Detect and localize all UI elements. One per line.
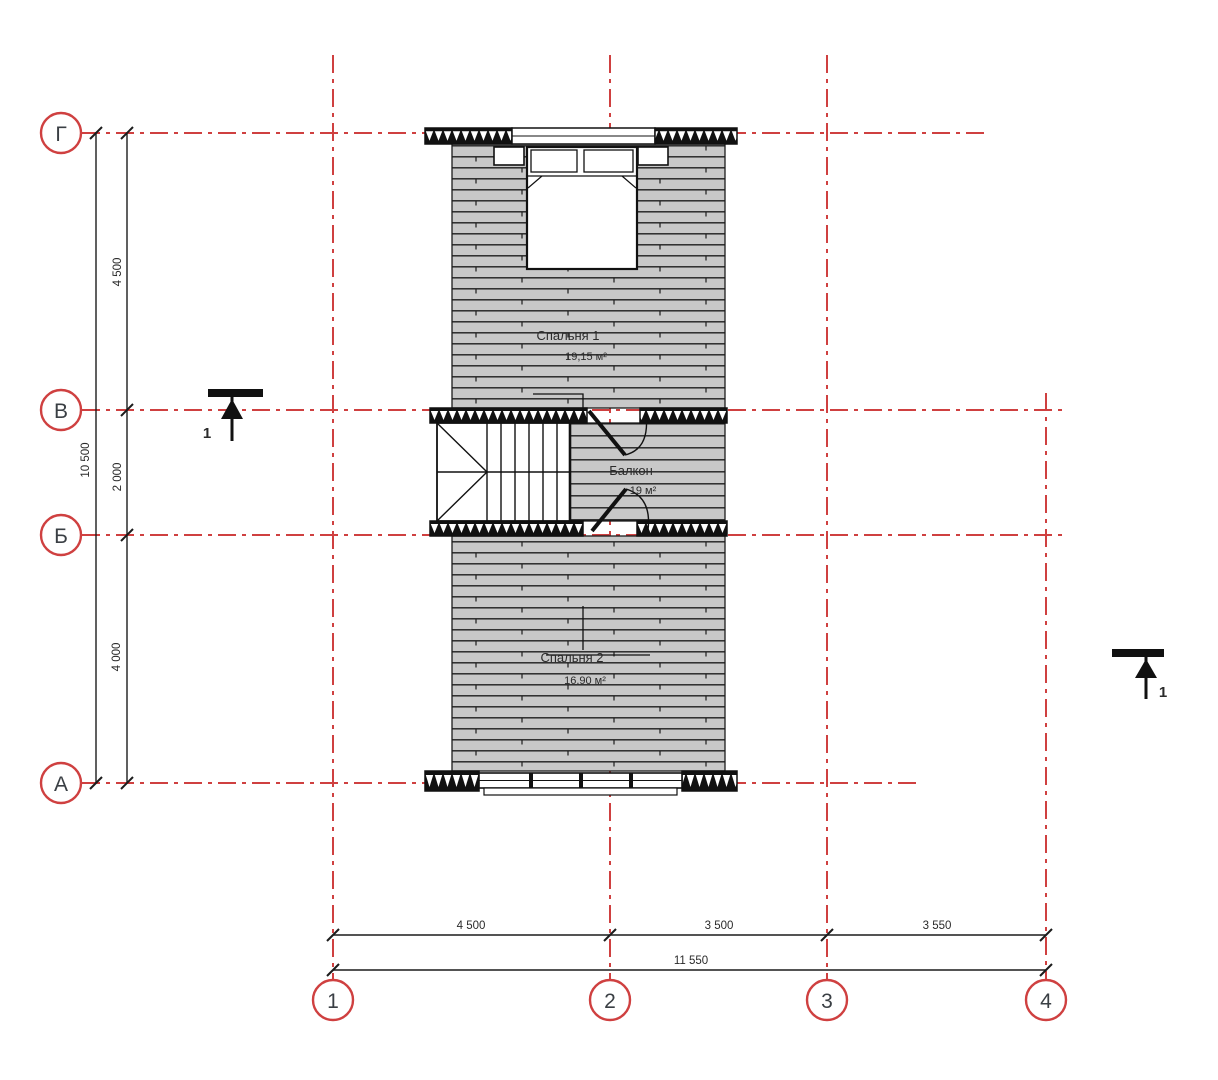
dim-bottom-3500: 3 500 [705, 920, 734, 932]
bedroom1-area: 19,15 м² [565, 351, 607, 363]
pillow-left [531, 150, 577, 172]
axis-bubble-G-label: Г [55, 123, 66, 146]
bottom-dimension-texts: 4 500 3 500 3 550 11 550 [457, 920, 952, 967]
section-marker-right: 1 [1112, 649, 1167, 701]
bottom-dimensions [327, 929, 1052, 976]
floor-plan-drawing: Спальня 1 19,15 м² Балкон 19 м² Спальня … [0, 0, 1218, 1080]
left-dimension-texts: 4 500 2 000 4 000 10 500 [80, 258, 124, 672]
section-left-number: 1 [203, 425, 211, 442]
axis-bubble-V-label: В [54, 400, 68, 423]
dim-bottom-4500: 4 500 [457, 920, 486, 932]
section-right-bar [1112, 649, 1164, 657]
balcony-name: Балкон [609, 463, 653, 478]
axis-bubble-A-label: А [54, 773, 68, 796]
floor-plan-canvas: Спальня 1 19,15 м² Балкон 19 м² Спальня … [0, 0, 1218, 1080]
dim-bottom-total: 11 550 [674, 955, 708, 967]
dim-left-total: 10 500 [80, 442, 92, 477]
nightstand-left [494, 147, 524, 165]
section-right-number: 1 [1159, 684, 1167, 701]
dim-left-4500: 4 500 [112, 258, 124, 287]
axis-bubble-1-label: 1 [327, 990, 339, 1013]
section-marker-left: 1 [203, 389, 263, 442]
top-wall [425, 128, 737, 144]
bottom-wall-insulation-left [425, 771, 479, 791]
axis-bubble-3-label: 3 [821, 990, 833, 1013]
wall-B-insulation-right [637, 521, 727, 536]
bottom-window-sill [484, 788, 677, 795]
dim-left-4000: 4 000 [111, 643, 123, 672]
wall-V-insulation-right [640, 408, 727, 423]
nightstand-right [638, 147, 668, 165]
left-dimensions [90, 127, 133, 789]
top-wall-insulation-right [655, 128, 737, 144]
wall-V-insulation-left [430, 408, 587, 423]
bottom-wall [425, 771, 737, 795]
dim-left-2000: 2 000 [112, 463, 124, 492]
staircase [437, 423, 570, 521]
section-right-arrow [1135, 659, 1157, 678]
axis-markers-left: Г В Б А [41, 113, 81, 803]
pillow-right [584, 150, 633, 172]
dim-bottom-3550: 3 550 [923, 920, 952, 932]
bottom-wall-insulation-right [682, 771, 737, 791]
top-wall-insulation-left [425, 128, 512, 144]
axis-bubble-4-label: 4 [1040, 990, 1052, 1013]
balcony-area: 19 м² [630, 485, 657, 497]
axis-markers-bottom: 1 2 3 4 [313, 980, 1066, 1020]
bedroom2-name: Спальня 2 [540, 650, 603, 665]
section-left-bar [208, 389, 263, 397]
plan-body: Спальня 1 19,15 м² Балкон 19 м² Спальня … [425, 128, 737, 795]
wall-B-insulation-left [430, 521, 583, 536]
bottom-dim-ticks [327, 929, 1052, 976]
bedroom1-name: Спальня 1 [536, 328, 599, 343]
bedroom2-area: 16,90 м² [564, 675, 606, 687]
axis-bubble-B-label: Б [54, 525, 68, 548]
axis-bubble-2-label: 2 [604, 990, 616, 1013]
